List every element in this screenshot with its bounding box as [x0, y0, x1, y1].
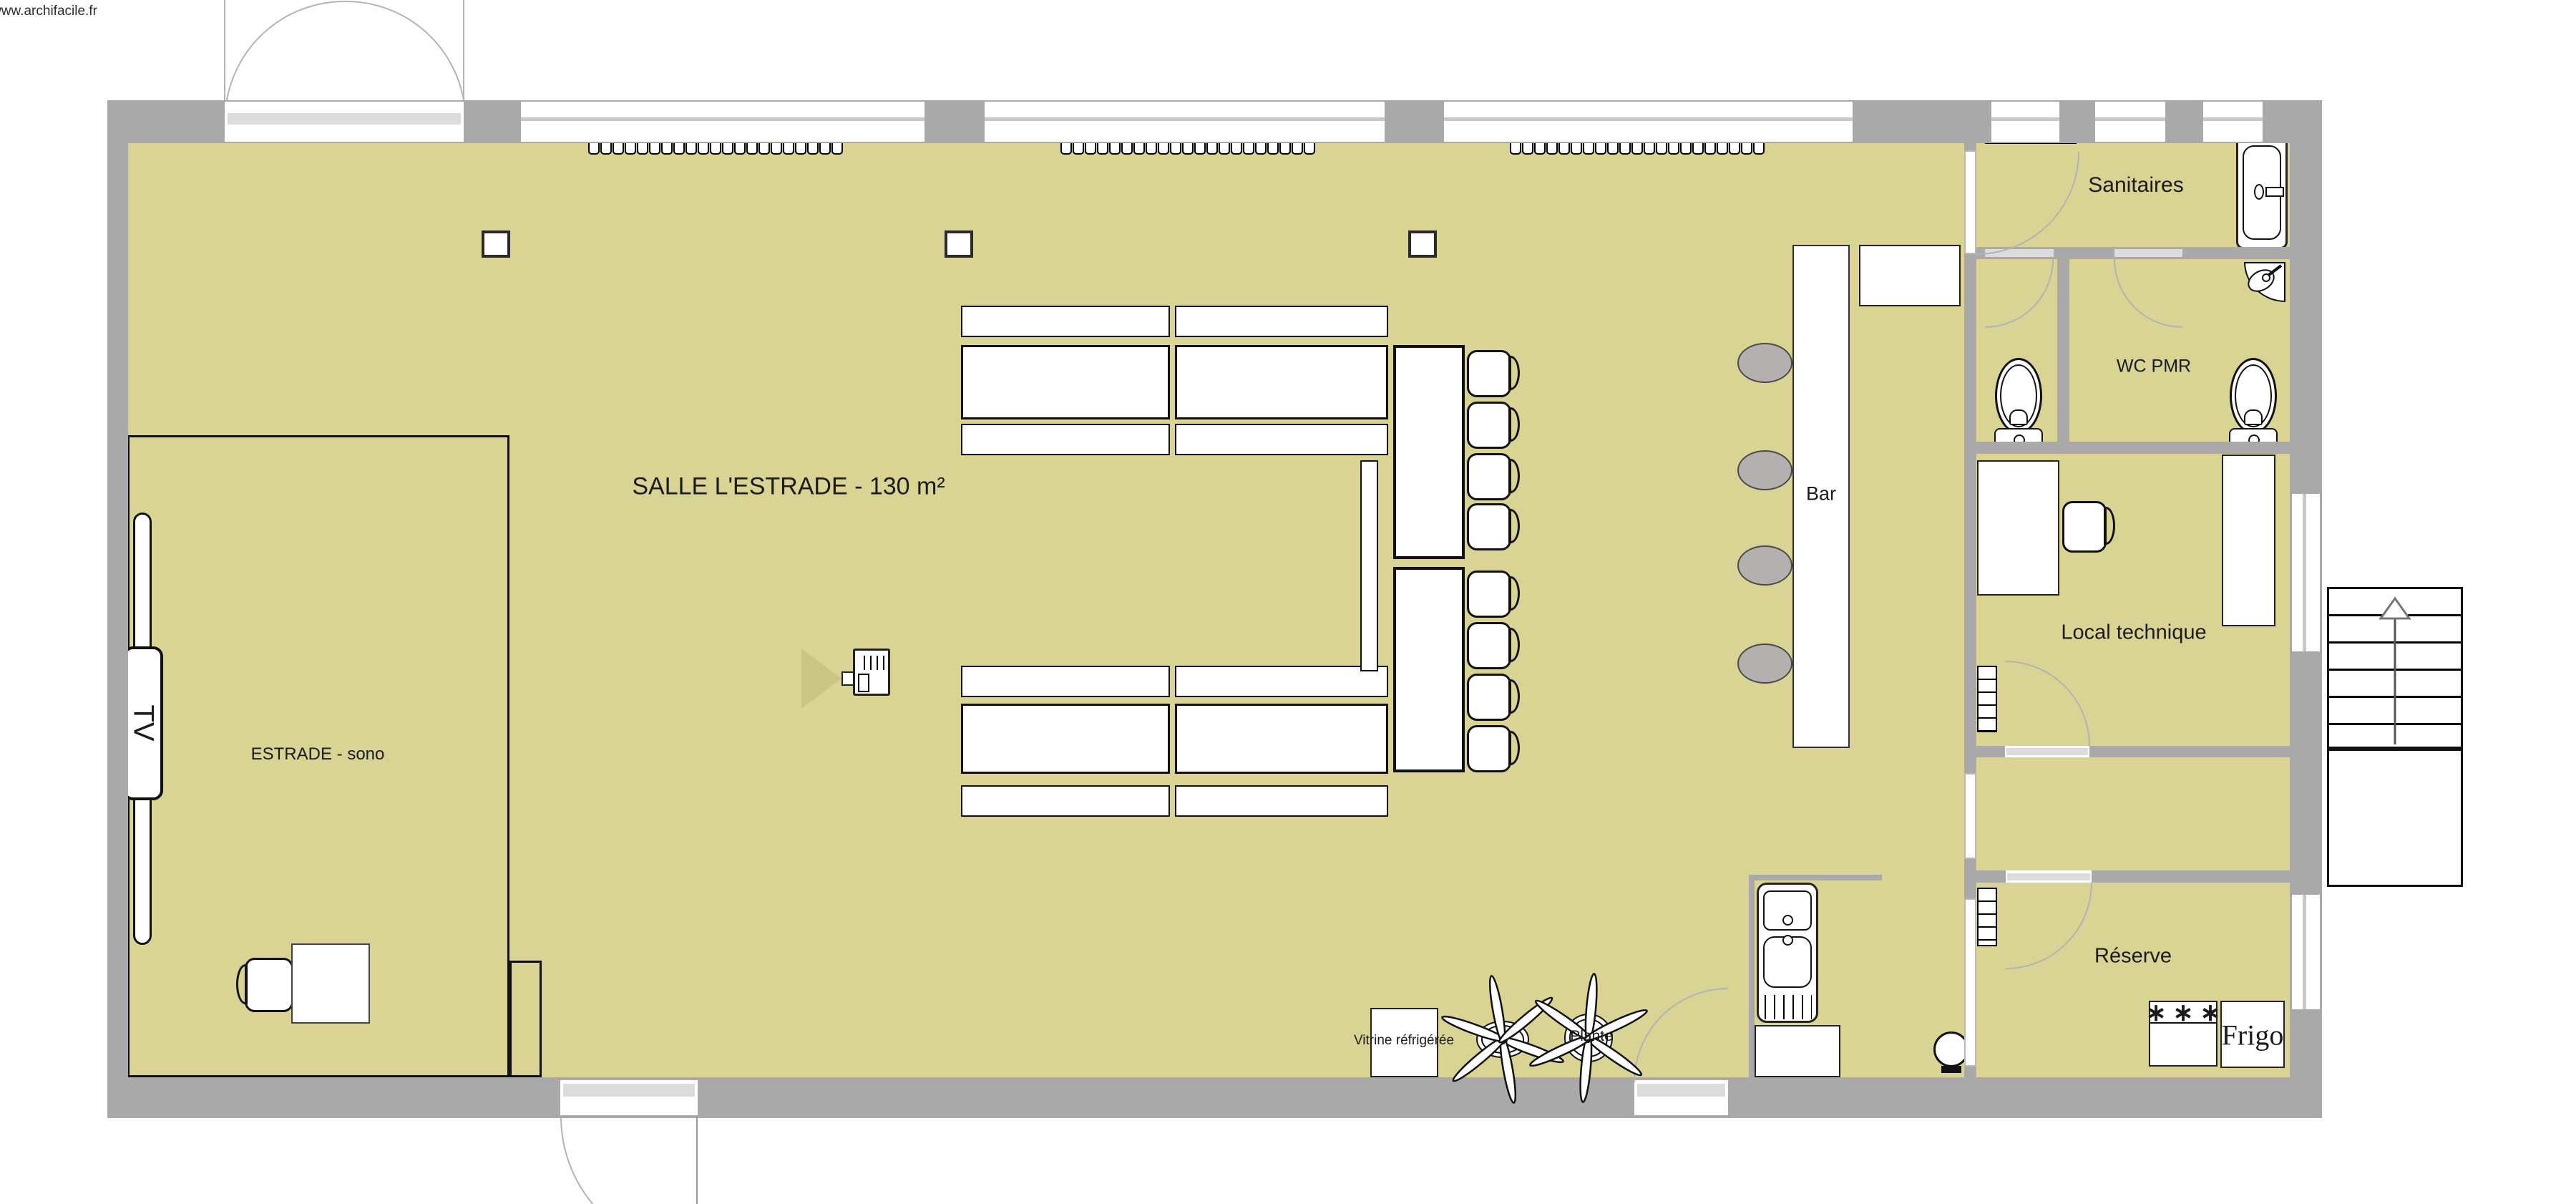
head-table-top: [1393, 345, 1465, 559]
plante-label: Plante: [1570, 1028, 1613, 1045]
front-door-arc-left: [227, 1, 346, 100]
localtech-desk: [1977, 460, 2059, 596]
narrow-table: [1360, 460, 1378, 671]
head-table-bottom: [1393, 567, 1465, 772]
partition-wc-bottom: [1964, 442, 2290, 454]
corridor-door-leaf: [1964, 773, 1976, 859]
bar-table-round: [1737, 343, 1792, 383]
outer-wall-left: [107, 100, 128, 1118]
frigo-label: Frigo: [2222, 1019, 2284, 1052]
localtech-door-leaf: [2006, 748, 2088, 755]
window-right-localtech: [2292, 494, 2320, 651]
bathtub-faucet-knob: [2254, 184, 2264, 200]
exterior-landing: [2327, 749, 2463, 887]
armchair: [1467, 571, 1511, 618]
kitchen-counter: [1755, 1025, 1840, 1077]
projector-body: [853, 649, 890, 696]
toilet-seat-arch: [2009, 409, 2028, 425]
projector-vents-icon: [864, 656, 887, 670]
bar-table-round: [1737, 450, 1792, 490]
radiator-localtech: [1977, 666, 1997, 732]
hall-label: SALLE L'ESTRADE - 130 m²: [632, 473, 945, 501]
bench-row: [1175, 785, 1388, 817]
toilet-wc: [1995, 358, 2044, 453]
column-3: [1408, 230, 1437, 258]
wc-pmr-label: WC PMR: [2117, 356, 2191, 377]
floor-plan: www.archifacile.fr TV: [0, 0, 2576, 1204]
round-pedestal-base: [1941, 1066, 1961, 1073]
toilet-wc-pmr: [2230, 358, 2278, 453]
front-double-door-leaf: [228, 113, 461, 125]
bar-label: Bar: [1806, 483, 1836, 505]
bench-row: [961, 424, 1170, 455]
reserve-door-leaf: [2007, 873, 2090, 880]
sanitaires-door-leaf: [1964, 150, 1976, 254]
wc-door-leaf: [1985, 249, 2054, 257]
sink-unit: [1757, 883, 1818, 1023]
localtech-chair: [2062, 501, 2107, 553]
bench-row: [961, 785, 1170, 817]
local-technique-label: Local technique: [2061, 621, 2206, 645]
armchair: [1467, 725, 1511, 772]
tv-label: TV: [127, 704, 160, 741]
reserve-label: Réserve: [2094, 945, 2172, 968]
estrade-step: [509, 961, 542, 1077]
armchair: [1467, 402, 1511, 449]
table: [1175, 704, 1388, 774]
window-top-1: [521, 102, 924, 142]
projector-lens-icon: [858, 674, 869, 692]
partition-wc-divider: [2057, 259, 2069, 442]
bar-table-round: [1737, 545, 1792, 586]
toilet-seat-arch: [2244, 409, 2263, 425]
armchair: [1467, 622, 1511, 669]
kitchenette-wall-horizontal: [1749, 875, 1882, 880]
armchair: [1467, 350, 1511, 397]
table: [1175, 345, 1388, 419]
window-right-reserve: [2292, 895, 2320, 1009]
armchair: [1467, 674, 1511, 721]
bathtub-faucet-spout: [2265, 187, 2284, 197]
front-door-arc-right: [344, 1, 464, 100]
window-top-3: [1444, 102, 1853, 142]
south-door-arc: [561, 1117, 697, 1204]
outer-wall-bottom: [107, 1077, 2322, 1118]
watermark: www.archifacile.fr: [0, 4, 97, 19]
table: [961, 704, 1170, 774]
bench-row: [1175, 666, 1388, 697]
bar-back-counter: [1859, 245, 1961, 306]
sink-drain-2: [1782, 935, 1793, 946]
freezer-stars-label: ∗ ∗ ∗: [2146, 999, 2220, 1027]
bench-row: [1175, 306, 1388, 337]
hall-south-door-leaf: [563, 1084, 695, 1097]
window-sanitaires-2: [2095, 102, 2165, 142]
window-sanitaires-1: [1991, 102, 2059, 142]
column-2: [945, 230, 973, 258]
sanitaires-label: Sanitaires: [2088, 173, 2183, 198]
exterior-stairs: [2327, 587, 2463, 749]
sono-chair: [245, 958, 293, 1012]
armchair: [1467, 503, 1511, 550]
sink-drainboard-lines: [1765, 995, 1812, 1019]
kitchenette-wall-vertical: [1749, 875, 1755, 1077]
hall-south-door2-leaf: [1637, 1084, 1725, 1097]
bench-row: [1175, 424, 1388, 455]
bar-table-round: [1737, 644, 1792, 684]
window-sanitaires-3: [2203, 102, 2263, 142]
bench-row: [961, 666, 1170, 697]
sono-desk: [291, 943, 370, 1024]
wc-pmr-door-leaf: [2114, 249, 2182, 257]
vitrine-label: Vitrine réfrigérée: [1354, 1033, 1454, 1049]
radiator-reserve: [1977, 888, 1997, 946]
projector-nozzle: [841, 671, 854, 686]
bathtub: [2236, 136, 2288, 249]
reserve-west-door-leaf: [1964, 898, 1976, 1067]
localtech-cabinet: [2222, 455, 2275, 626]
column-1: [482, 230, 510, 258]
estrade-label: ESTRADE - sono: [251, 744, 385, 764]
armchair: [1467, 453, 1511, 500]
bench-row: [961, 306, 1170, 337]
sink-drain-1: [1782, 915, 1793, 926]
window-top-2: [985, 102, 1385, 142]
table: [961, 345, 1170, 419]
